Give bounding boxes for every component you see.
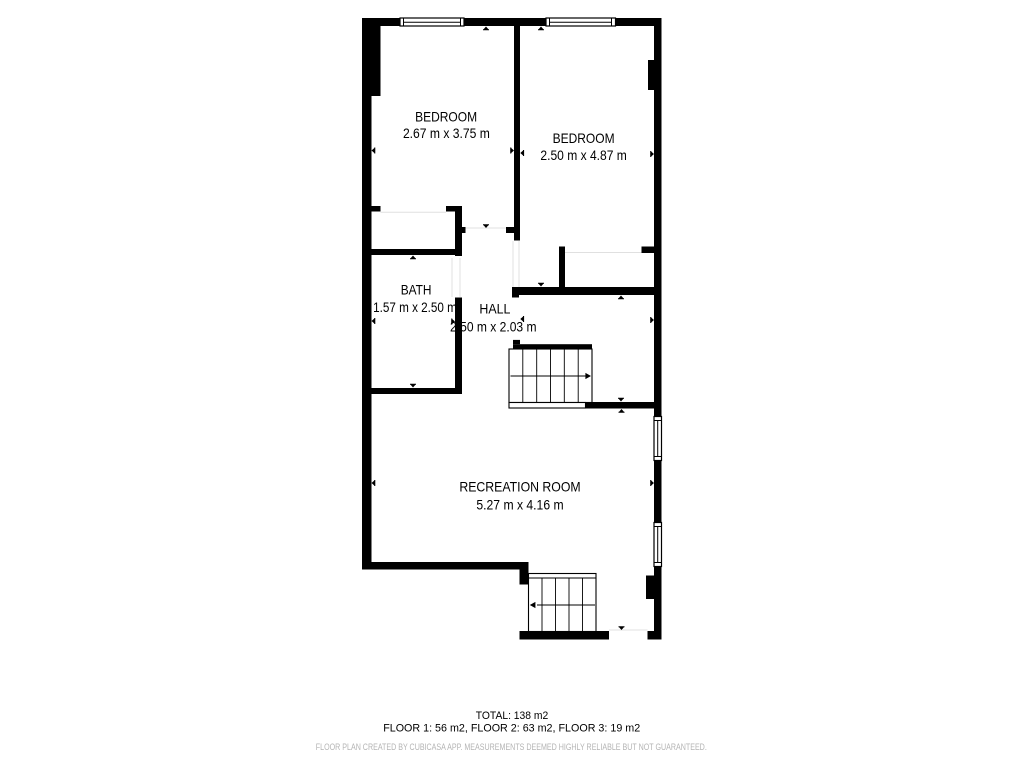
svg-text:BEDROOM: BEDROOM bbox=[415, 109, 477, 124]
svg-text:5.27 m x 4.16 m: 5.27 m x 4.16 m bbox=[476, 497, 563, 512]
svg-text:FLOOR PLAN CREATED BY CUBICASA: FLOOR PLAN CREATED BY CUBICASA APP. MEAS… bbox=[316, 742, 707, 752]
svg-text:BATH: BATH bbox=[401, 283, 432, 298]
svg-text:RECREATION ROOM: RECREATION ROOM bbox=[459, 480, 580, 495]
svg-text:2.50 m x 4.87 m: 2.50 m x 4.87 m bbox=[540, 148, 626, 163]
svg-text:FLOOR 1: 56 m2, FLOOR 2: 63 m2: FLOOR 1: 56 m2, FLOOR 2: 63 m2, FLOOR 3:… bbox=[383, 722, 640, 734]
svg-text:TOTAL: 138 m2: TOTAL: 138 m2 bbox=[476, 710, 549, 722]
svg-text:1.57 m x 2.50 m: 1.57 m x 2.50 m bbox=[373, 300, 457, 315]
svg-text:HALL: HALL bbox=[479, 302, 510, 317]
svg-text:2.67 m x 3.75 m: 2.67 m x 3.75 m bbox=[403, 126, 490, 141]
svg-text:2.50 m x 2.03 m: 2.50 m x 2.03 m bbox=[450, 319, 537, 334]
svg-text:BEDROOM: BEDROOM bbox=[553, 131, 615, 146]
